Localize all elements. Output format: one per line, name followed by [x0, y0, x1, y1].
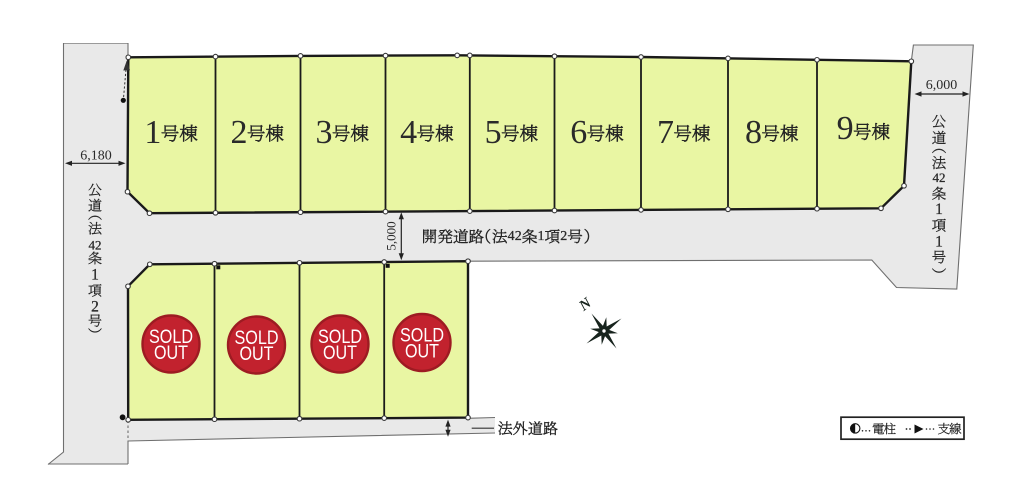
svg-text:5: 5 [485, 114, 502, 151]
svg-text:8: 8 [745, 114, 762, 151]
svg-text:1: 1 [935, 201, 943, 218]
svg-text:6: 6 [570, 114, 587, 151]
svg-text:6,000: 6,000 [926, 78, 958, 93]
svg-text:4: 4 [400, 114, 417, 151]
svg-text:42: 42 [933, 170, 946, 185]
svg-text:2: 2 [231, 114, 248, 151]
svg-text:7: 7 [657, 114, 674, 151]
svg-text:OUT: OUT [323, 343, 357, 364]
svg-text:OUT: OUT [154, 343, 188, 364]
svg-text:2: 2 [560, 229, 567, 244]
svg-text:4: 4 [508, 229, 515, 244]
svg-text:9: 9 [837, 110, 854, 147]
svg-text:5,000: 5,000 [383, 221, 398, 250]
svg-text:1: 1 [91, 266, 99, 283]
svg-text:1: 1 [538, 229, 545, 244]
svg-text:OUT: OUT [405, 341, 439, 362]
svg-text:42: 42 [89, 237, 102, 252]
svg-text:3: 3 [316, 114, 333, 151]
svg-text:2: 2 [515, 229, 522, 244]
svg-text:OUT: OUT [240, 344, 274, 365]
svg-text:6,180: 6,180 [80, 149, 112, 164]
svg-text:2: 2 [91, 299, 99, 316]
svg-text:1: 1 [144, 114, 161, 151]
svg-text:N: N [576, 294, 596, 315]
svg-text:1: 1 [935, 233, 943, 250]
